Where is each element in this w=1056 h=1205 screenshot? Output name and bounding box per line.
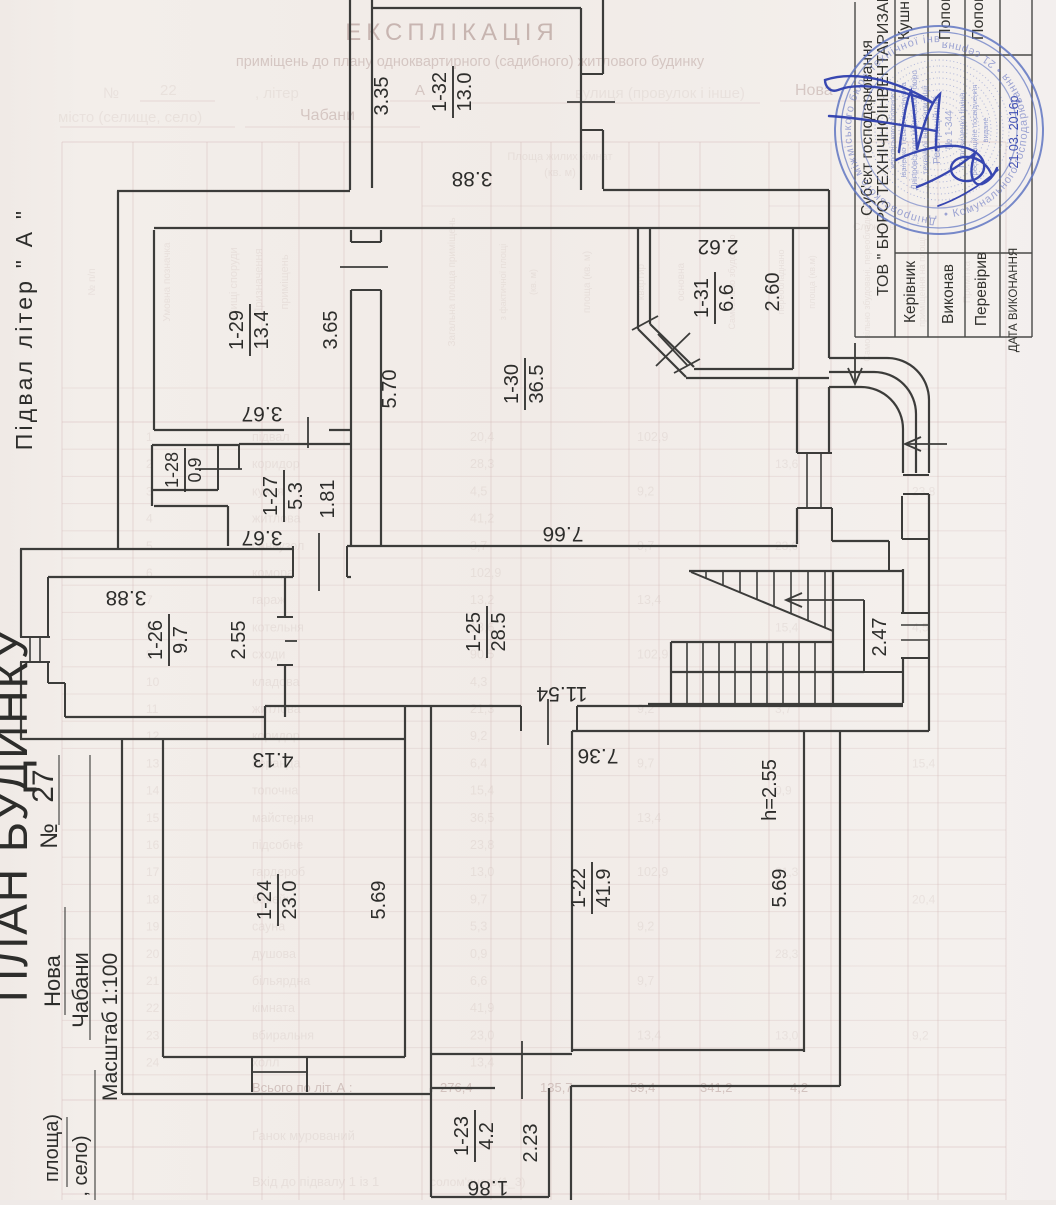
svg-text:кімната: кімната [252,1001,295,1015]
svg-text:майстерня: майстерня [252,811,314,825]
svg-text:59,4: 59,4 [630,1080,655,1095]
svg-text:102,9: 102,9 [637,430,668,444]
svg-text:5: 5 [146,539,153,553]
svg-text:13.0: 13.0 [454,73,476,112]
svg-text:Іваненко Тетяна виконуюча: Іваненко Тетяна виконуюча [899,82,908,178]
svg-text:341,2: 341,2 [700,1080,733,1095]
svg-text:житлова: житлова [252,702,301,716]
svg-text:6,6: 6,6 [470,974,487,988]
svg-text:2.60: 2.60 [762,273,784,312]
svg-text:3.67: 3.67 [242,402,283,425]
svg-text:Загальна площа приміщень: Загальна площа приміщень [447,217,458,346]
svg-text:кладова: кладова [252,675,300,689]
svg-text:5.3: 5.3 [285,482,307,510]
svg-text:23: 23 [146,1028,160,1042]
svg-text:h=2.55: h=2.55 [759,759,781,821]
svg-text:Вхід до підвалу 1 із 1: Вхід до підвалу 1 із 1 [252,1174,379,1189]
svg-text:більярдна: більярдна [252,974,310,988]
svg-text:Площа жилих кімнат: Площа жилих кімнат [507,151,612,163]
svg-text:1.86: 1.86 [468,1176,509,1199]
svg-text:, літер: , літер [255,85,299,102]
svg-text:Вищі споруди: Вищі споруди [228,247,240,316]
svg-text:36.5: 36.5 [526,365,548,404]
svg-text:(кв. м): (кв. м) [528,269,538,295]
svg-text:1-23: 1-23 [451,1116,473,1156]
svg-text:15: 15 [146,811,160,825]
svg-text:14: 14 [146,784,160,798]
svg-text:сходи: сходи [252,648,285,662]
svg-text:21.03. 2016р: 21.03. 2016р [1007,95,1021,168]
svg-text:102,9: 102,9 [470,566,501,580]
svg-text:0.9: 0.9 [185,457,205,482]
svg-text:4.13: 4.13 [253,748,294,771]
svg-text:площа): площа) [41,1114,63,1182]
svg-text:3.67: 3.67 [242,526,283,549]
svg-text:41.9: 41.9 [593,869,615,908]
svg-text:6.6: 6.6 [716,284,738,312]
svg-text:приміщень: приміщень [279,254,291,309]
svg-text:19: 19 [146,920,160,934]
svg-text:Чабани: Чабани [68,952,93,1028]
svg-text:підвал: підвал [252,430,290,444]
svg-text:13,4: 13,4 [637,1028,661,1042]
svg-text:1-28: 1-28 [162,452,182,488]
svg-text:душова: душова [252,947,296,961]
svg-text:1.81: 1.81 [317,480,339,519]
svg-text:9,2: 9,2 [470,729,487,743]
svg-text:135,7: 135,7 [540,1080,573,1095]
svg-text:вулиця (провулок і інше): вулиця (провулок і інше) [575,85,745,102]
svg-text:площа (кв. м): площа (кв. м) [582,251,593,313]
svg-text:41,9: 41,9 [470,1001,494,1015]
svg-text:5.69: 5.69 [769,869,791,908]
svg-text:3.35: 3.35 [371,77,393,116]
svg-text:15,4: 15,4 [470,784,494,798]
svg-text:Чабани: Чабани [300,107,355,124]
svg-text:1-31: 1-31 [691,278,713,318]
svg-text:2.23: 2.23 [520,1124,542,1163]
svg-text:102,9: 102,9 [637,648,668,662]
svg-text:Примітка: Примітка [962,260,973,303]
svg-text:12: 12 [146,729,160,743]
svg-text:Ґанок мурований: Ґанок мурований [252,1128,355,1143]
svg-text:3.88: 3.88 [106,586,147,609]
svg-text:вбиральня: вбиральня [252,1028,314,1042]
svg-text:Виконав: Виконав [940,264,957,324]
svg-text:Масштаб 1:100: Масштаб 1:100 [99,953,122,1101]
svg-text:ДАТА ВИКОНАННЯ: ДАТА ВИКОНАННЯ [1008,248,1020,352]
svg-text:7.36: 7.36 [578,744,619,767]
svg-text:13,0: 13,0 [470,865,494,879]
svg-text:9,7: 9,7 [470,892,487,906]
svg-text:Підвал літер " А ": Підвал літер " А " [11,208,37,450]
svg-text:36,5: 36,5 [470,811,494,825]
svg-text:41,2: 41,2 [470,512,494,526]
svg-text:13,2: 13,2 [470,593,494,607]
svg-text:Всього по літ. А :: Всього по літ. А : [252,1080,352,1095]
svg-text:1-32: 1-32 [429,72,451,112]
svg-text:15,4: 15,4 [775,620,799,634]
svg-text:№: № [36,823,63,849]
svg-text:4,2: 4,2 [790,1080,808,1095]
svg-text:топочна: топочна [252,784,298,798]
svg-text:13,4: 13,4 [637,811,661,825]
svg-text:21: 21 [146,974,160,988]
svg-text:20,4: 20,4 [912,892,936,906]
svg-text:15,4: 15,4 [912,756,936,770]
svg-text:місто (селище, село): місто (селище, село) [58,109,202,126]
svg-text:0,9: 0,9 [470,947,487,961]
svg-text:16: 16 [146,838,160,852]
svg-text:28,3: 28,3 [470,457,494,471]
svg-text:4,3: 4,3 [470,675,487,689]
svg-text:13,0: 13,0 [775,1028,799,1042]
svg-text:основна: основна [676,263,687,301]
svg-text:3.65: 3.65 [320,311,342,350]
svg-text:1-24: 1-24 [254,880,276,920]
svg-text:28,3: 28,3 [775,947,799,961]
svg-text:підсобне: підсобне [252,838,303,852]
svg-text:4,5: 4,5 [912,620,929,634]
svg-text:4.2: 4.2 [476,1122,498,1150]
svg-text:приміщень до плану одноквартир: приміщень до плану одноквартирного (сади… [236,54,705,70]
svg-text:6,4: 6,4 [470,756,487,770]
svg-text:18: 18 [146,892,160,906]
svg-text:ЕКСПЛІКАЦІЯ: ЕКСПЛІКАЦІЯ [345,19,558,46]
svg-text:1-29: 1-29 [226,310,248,350]
svg-text:5.70: 5.70 [379,370,401,409]
svg-text:Керівник: Керівник [902,261,919,323]
svg-text:21,3: 21,3 [470,702,494,716]
svg-text:102,9: 102,9 [637,865,668,879]
svg-text:Перевірив: Перевірив [973,252,990,326]
svg-text:5,3: 5,3 [470,920,487,934]
svg-text:Умовна позначка: Умовна позначка [162,242,173,322]
svg-text:20: 20 [146,947,160,961]
svg-text:1: 1 [146,430,153,444]
svg-text:2.62: 2.62 [698,235,739,258]
svg-text:1-30: 1-30 [501,364,523,404]
svg-text:9,7: 9,7 [637,974,654,988]
svg-text:1-22: 1-22 [568,868,590,908]
svg-text:видане: видане [981,117,990,142]
svg-text:1-27: 1-27 [260,476,282,516]
svg-text:11.54: 11.54 [536,682,587,705]
svg-text:з фактичної площі: з фактичної площі [498,244,508,321]
svg-text:коридор: коридор [252,457,300,471]
svg-text:13: 13 [146,756,160,770]
svg-text:13.4: 13.4 [251,311,273,350]
svg-text:сауна: сауна [252,920,285,934]
svg-text:№ п/п: № п/п [87,268,98,295]
svg-text:№ 1-344: № 1-344 [944,110,955,150]
svg-text:11: 11 [146,702,159,716]
svg-text:13,6: 13,6 [775,457,799,471]
svg-text:5.69: 5.69 [368,881,390,920]
svg-text:13,4: 13,4 [637,593,661,607]
svg-text:Призначення: Призначення [253,248,265,315]
svg-text:24: 24 [146,1056,160,1070]
svg-text:17: 17 [146,865,160,879]
svg-text:27: 27 [27,769,60,802]
svg-text:28.5: 28.5 [488,613,510,652]
svg-text:20,4: 20,4 [470,430,494,444]
svg-text:1-25: 1-25 [463,612,485,652]
svg-text:7.66: 7.66 [543,522,584,545]
svg-text:23,0: 23,0 [470,1028,494,1042]
svg-text:22: 22 [160,82,177,99]
svg-text:№: № [103,85,119,102]
svg-text:4: 4 [146,512,153,526]
svg-text:2.47: 2.47 [869,618,891,657]
svg-text:22: 22 [146,1001,160,1015]
svg-text:9,2: 9,2 [912,1028,929,1042]
svg-text:котельня: котельня [252,620,304,634]
svg-text:23,8: 23,8 [470,838,494,852]
svg-text:херсонського обласного: херсонського обласного [889,91,897,169]
svg-text:(кв. м): (кв. м) [544,167,576,179]
svg-text:Нова: Нова [40,954,65,1007]
svg-text:9.7: 9.7 [170,626,192,654]
svg-text:13,4: 13,4 [470,1056,494,1070]
svg-text:1-26: 1-26 [145,620,167,660]
svg-text:гараж: гараж [252,593,286,607]
svg-text:А: А [415,82,425,99]
svg-text:2.55: 2.55 [228,621,250,660]
svg-text:, село): , село) [70,1135,92,1196]
svg-text:коридор: коридор [252,729,300,743]
svg-text:9,2: 9,2 [637,484,654,498]
svg-text:23.0: 23.0 [279,881,301,920]
svg-text:4,5: 4,5 [470,484,487,498]
svg-text:9,2: 9,2 [637,920,654,934]
svg-text:ПЛАН БУДИНКУ: ПЛАН БУДИНКУ [0,628,37,1002]
svg-text:23,8: 23,8 [912,484,936,498]
svg-text:3.88: 3.88 [452,167,493,190]
svg-text:10: 10 [146,675,160,689]
svg-text:9,7: 9,7 [637,756,654,770]
svg-text:площа (кв.м): площа (кв.м) [807,255,817,309]
